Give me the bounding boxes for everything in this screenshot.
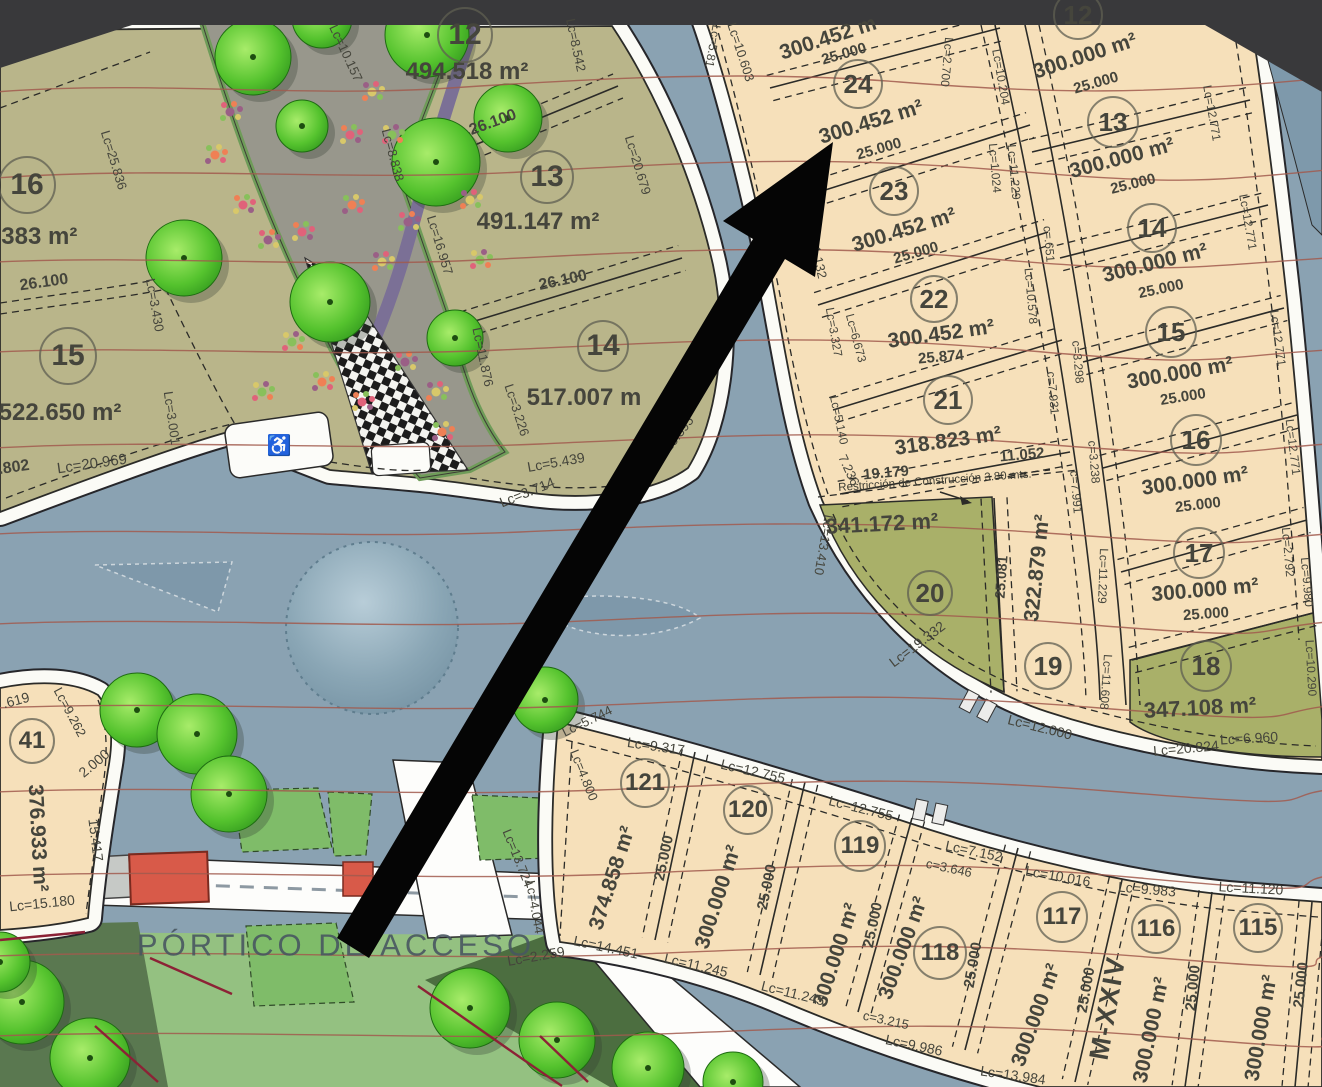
map-base-layer <box>0 0 1322 1087</box>
block-lot41 <box>0 683 111 930</box>
entrance-building-red <box>129 852 209 905</box>
site-plan-map: .383 m²26.100Lc=25.836Lc=3.430522.650 m²… <box>0 0 1322 1087</box>
entrance-building-red-small <box>343 862 373 896</box>
